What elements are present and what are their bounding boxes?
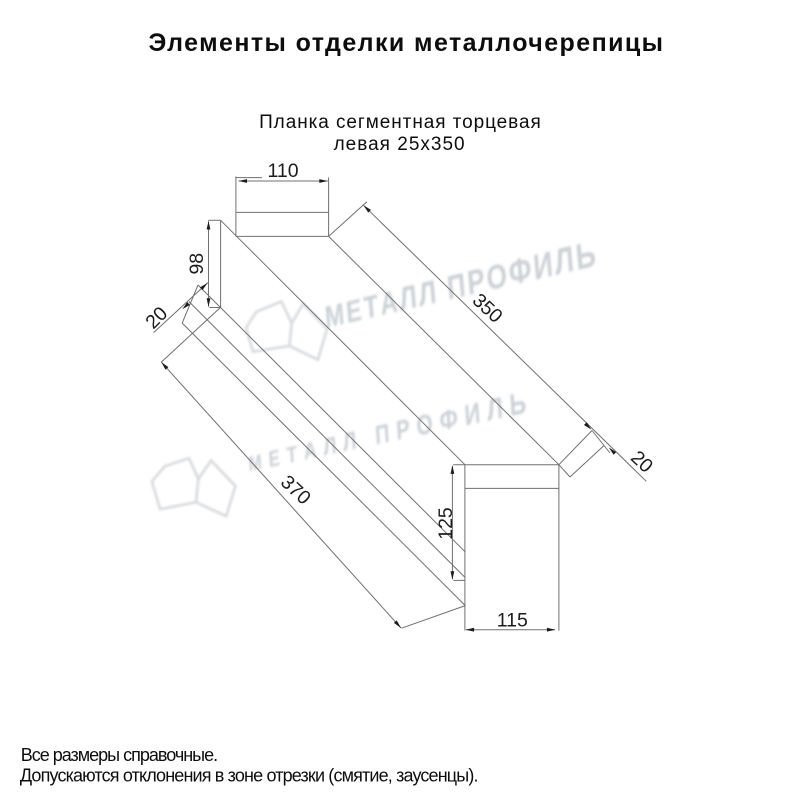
svg-text:Элементы отделки металлочерепи: Элементы отделки металлочерепицы — [149, 29, 665, 57]
svg-text:125: 125 — [435, 507, 457, 540]
svg-text:Планка сегментная торцевая: Планка сегментная торцевая — [259, 112, 542, 133]
svg-text:левая 25х350: левая 25х350 — [334, 134, 466, 155]
svg-text:Все размеры справочные.: Все размеры справочные. — [21, 745, 217, 765]
svg-text:370: 370 — [276, 471, 315, 509]
svg-text:20: 20 — [626, 447, 657, 478]
svg-text:20: 20 — [141, 302, 172, 333]
svg-text:110: 110 — [267, 160, 298, 182]
svg-text:МЕТАЛЛ ПРОФИЛЬ: МЕТАЛЛ ПРОФИЛЬ — [323, 233, 599, 336]
svg-text:115: 115 — [497, 610, 528, 632]
svg-text:Допускаются отклонения в зоне: Допускаются отклонения в зоне отрезки (с… — [20, 765, 478, 785]
svg-text:98: 98 — [186, 253, 208, 275]
